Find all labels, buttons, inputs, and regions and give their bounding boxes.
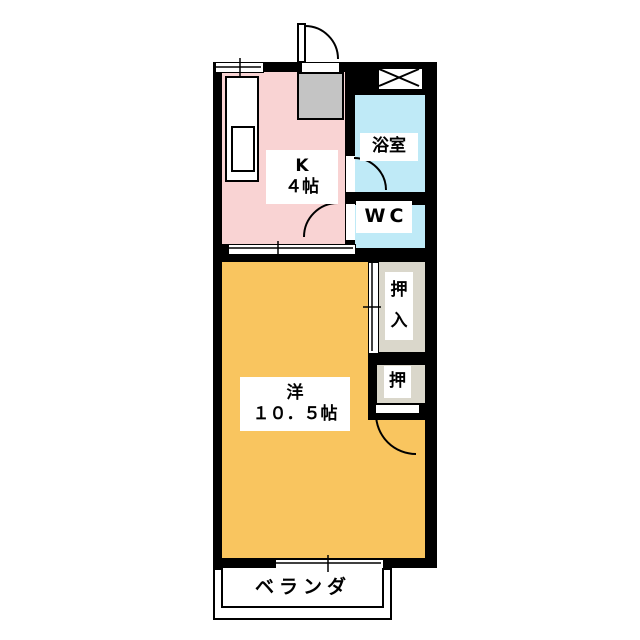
floor-plan: K ４帖 浴室 WC 押入 押 洋 １０．５帖 ベランダ [0,0,640,640]
kitchen-sink-icon [231,126,255,172]
western-name: 洋 [287,383,304,404]
sliding-door-icon [228,244,356,255]
closet-door-leaf [374,403,421,415]
western-size: １０．５帖 [253,404,338,425]
entry-door-icon [298,24,338,62]
kitchen-size: ４帖 [285,177,319,198]
room-label-closet-small: 押 [384,366,411,398]
room-label-kitchen: K ４帖 [266,150,338,204]
bath-door-opening [346,156,355,192]
window-icon [215,62,264,73]
entry-threshold [301,62,340,73]
room-label-closet-large: 押入 [385,272,413,340]
sliding-door-icon [368,262,379,354]
room-label-wc: WC [356,201,412,233]
room-label-veranda: ベランダ [221,572,380,604]
genkan-area [297,72,344,120]
kitchen-name: K [295,156,308,177]
crossed-box-icon [377,67,424,91]
room-label-bathroom: 浴室 [360,133,418,161]
wc-door-opening [346,204,355,240]
room-label-western: 洋 １０．５帖 [240,377,350,431]
